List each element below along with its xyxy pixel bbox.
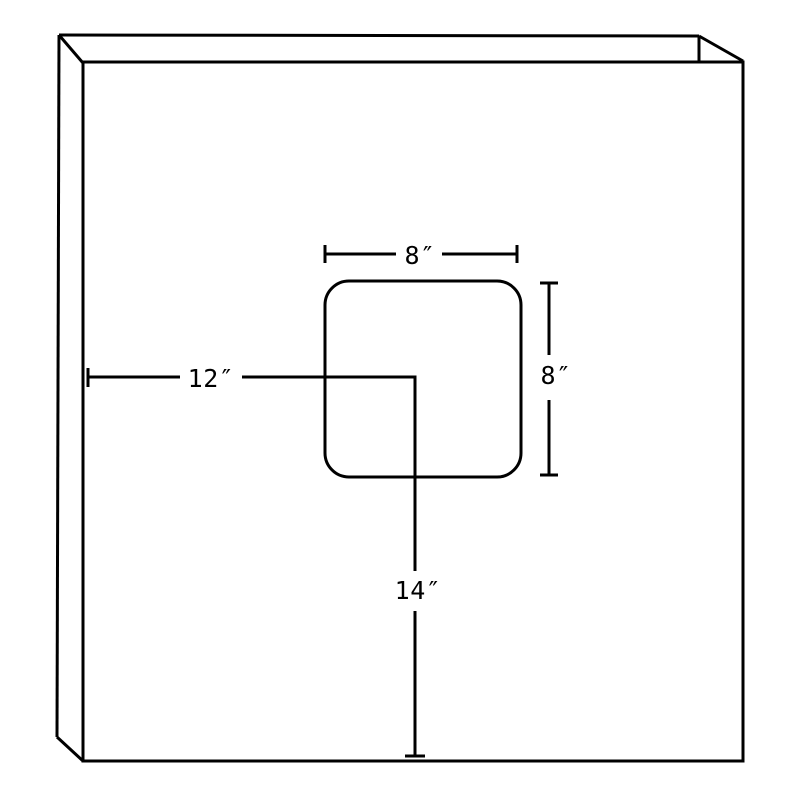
dim-offset-bottom: 14″: [395, 376, 442, 757]
panel-outline: [57, 35, 743, 761]
technical-drawing: 8″ 8″ 12″ 14″: [0, 0, 800, 800]
panel-top-left-bevel: [59, 35, 83, 63]
drawing-canvas: 8″ 8″ 12″ 14″: [0, 0, 800, 800]
dim-offset-left: 12″: [88, 364, 416, 393]
panel-top-right-bevel: [699, 36, 743, 61]
dim-cutout-height: 8″: [540, 283, 572, 475]
cutout-square: [325, 281, 521, 477]
dim-offset-left-label: 12″: [188, 364, 235, 393]
dim-cutout-width-label: 8″: [404, 241, 435, 270]
dim-cutout-width: 8″: [325, 241, 517, 270]
panel-front-face: [83, 62, 743, 761]
panel-bottom-left-bevel: [57, 737, 83, 761]
dim-cutout-height-label: 8″: [540, 361, 571, 390]
dim-offset-bottom-label: 14″: [395, 576, 442, 605]
panel-left-edge-outer: [57, 35, 59, 737]
panel-top-edge-outer: [59, 35, 699, 36]
